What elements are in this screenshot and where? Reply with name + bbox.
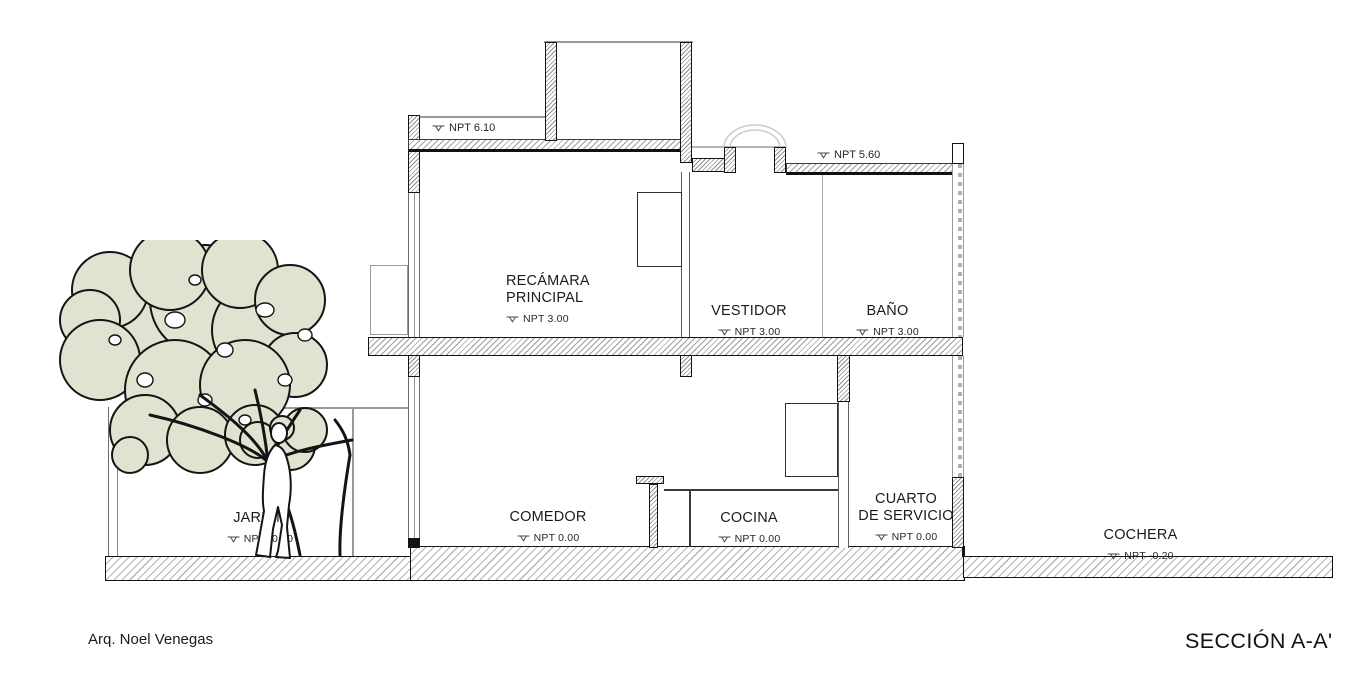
roof-box-left-wall xyxy=(545,42,557,141)
right-parapet-wall xyxy=(952,143,964,164)
room-label-cocina: COCINA NPT 0.00 xyxy=(688,510,810,548)
room-level: NPT 3.00 xyxy=(506,311,626,328)
level-marker-icon xyxy=(856,329,869,336)
kitchen-bar-counter-top xyxy=(636,476,664,484)
roof-box-top-line xyxy=(544,41,693,43)
level-label-roof-upper: NPT 6.10 xyxy=(432,122,495,134)
room-name: PRINCIPAL xyxy=(506,290,626,307)
level-text: NPT 6.10 xyxy=(449,122,495,134)
room-level: NPT 3.00 xyxy=(688,324,810,341)
room-level: NPT 0.00 xyxy=(843,529,969,546)
room-name: BAÑO xyxy=(825,303,950,320)
wall-stub-kitchen-below-slab xyxy=(837,355,850,402)
room-name: CUARTO xyxy=(843,491,969,508)
tree-graphic xyxy=(55,240,375,570)
left-window-lower xyxy=(408,377,420,538)
room-label-vestidor: VESTIDOR NPT 3.00 xyxy=(688,303,810,341)
house-ground-slab xyxy=(410,546,965,581)
kitchen-bar-counter-stem xyxy=(649,484,658,548)
level-marker-icon xyxy=(875,534,888,541)
level-marker-icon xyxy=(1107,553,1120,560)
level-marker-icon xyxy=(432,125,445,132)
room-label-cuarto-servicio: CUARTO DE SERVICIO NPT 0.00 xyxy=(843,491,969,546)
room-name: VESTIDOR xyxy=(688,303,810,320)
room-label-bano: BAÑO NPT 3.00 xyxy=(825,303,950,341)
section-drawing: NPT 6.10 NPT 5.60 RECÁMARA PRINCIPAL NPT… xyxy=(0,0,1370,684)
room-name: COCHERA xyxy=(1078,527,1203,544)
left-parapet-wall xyxy=(408,115,420,193)
wall-stub-left-below-slab xyxy=(408,355,420,377)
parapet-top-line xyxy=(420,116,545,118)
divider-vestidor-bano xyxy=(822,175,823,337)
roof-ladder-lower xyxy=(952,356,964,477)
room-name: COCINA xyxy=(688,510,810,527)
roof-ladder-upper xyxy=(952,164,964,337)
level-marker-icon xyxy=(506,316,519,323)
kitchen-window xyxy=(785,403,838,477)
room-label-cochera: COCHERA NPT -0.20 xyxy=(1078,527,1203,565)
room-name: RECÁMARA xyxy=(506,273,626,290)
room-name: COMEDOR xyxy=(478,509,618,526)
room-name: DE SERVICIO xyxy=(843,508,969,525)
roof-box-right-wall xyxy=(680,42,692,163)
left-wall-base xyxy=(408,538,420,548)
level-label-roof-lower: NPT 5.60 xyxy=(817,149,880,161)
room-level: NPT 0.00 xyxy=(688,531,810,548)
roof-parapet-stub-right xyxy=(774,147,786,173)
room-level: NPT 3.00 xyxy=(825,324,950,341)
room-level: NPT -0.20 xyxy=(1078,548,1203,565)
room-label-comedor: COMEDOR NPT 0.00 xyxy=(478,509,618,547)
person-figure xyxy=(245,413,309,561)
roof-parapet-stub-left xyxy=(724,147,736,173)
recamara-closet xyxy=(637,192,682,267)
section-title: SECCIÓN A-A' xyxy=(1185,629,1333,654)
roof-step-strip xyxy=(692,158,726,172)
balcony-railing xyxy=(370,265,408,335)
left-window-upper xyxy=(408,193,420,337)
architect-credit: Arq. Noel Venegas xyxy=(88,631,213,648)
wall-stub-mid-below-slab xyxy=(680,355,692,377)
level-marker-icon xyxy=(718,329,731,336)
cochera-wall-face-line xyxy=(962,548,964,557)
level-text: NPT 5.60 xyxy=(834,149,880,161)
roof-dome-skylight xyxy=(718,120,792,150)
level-marker-icon xyxy=(718,536,731,543)
roof-slab-lower xyxy=(786,163,954,175)
level-marker-icon xyxy=(517,535,530,542)
room-label-recamara: RECÁMARA PRINCIPAL NPT 3.00 xyxy=(506,273,626,328)
level-marker-icon xyxy=(817,152,830,159)
room-level: NPT 0.00 xyxy=(478,530,618,547)
